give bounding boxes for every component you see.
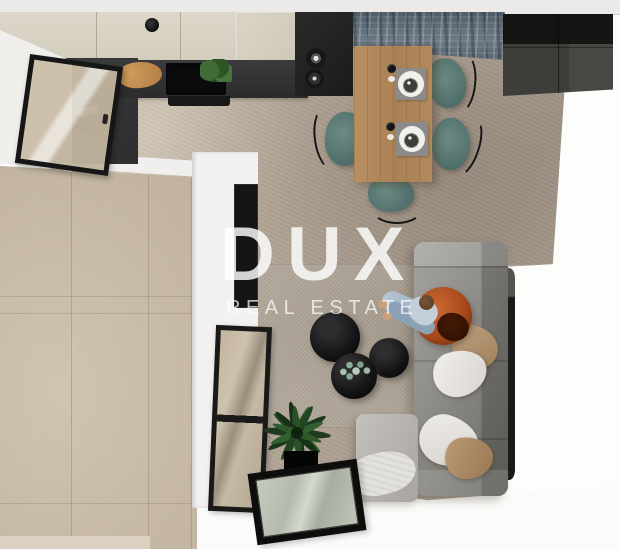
- range-hood-vent: [168, 96, 230, 106]
- cup: [386, 122, 395, 131]
- saucer: [387, 134, 394, 140]
- tile-floor-edge: [0, 536, 150, 549]
- apartment-3d-render: DUX REAL ESTATE: [0, 0, 620, 549]
- coffee-machine: [298, 44, 334, 92]
- dining-chair: [430, 117, 472, 172]
- person-head: [419, 295, 434, 310]
- watermark-title: DUX: [220, 215, 418, 295]
- watermark: DUX REAL ESTATE: [220, 215, 418, 320]
- floor-glass-panel: [248, 459, 367, 546]
- watermark-subtitle: REAL ESTATE: [226, 297, 418, 320]
- counter-plant: [200, 59, 232, 82]
- cup: [387, 64, 396, 73]
- saucer: [388, 76, 395, 82]
- ceiling-light-fixture: [145, 18, 159, 32]
- wardrobe-cabinet: [503, 14, 613, 96]
- kitchen-glass-door: [15, 54, 123, 176]
- dinner-plate: [399, 126, 425, 152]
- dinner-plate: [398, 71, 424, 97]
- bathroom-tile-floor: [0, 152, 197, 549]
